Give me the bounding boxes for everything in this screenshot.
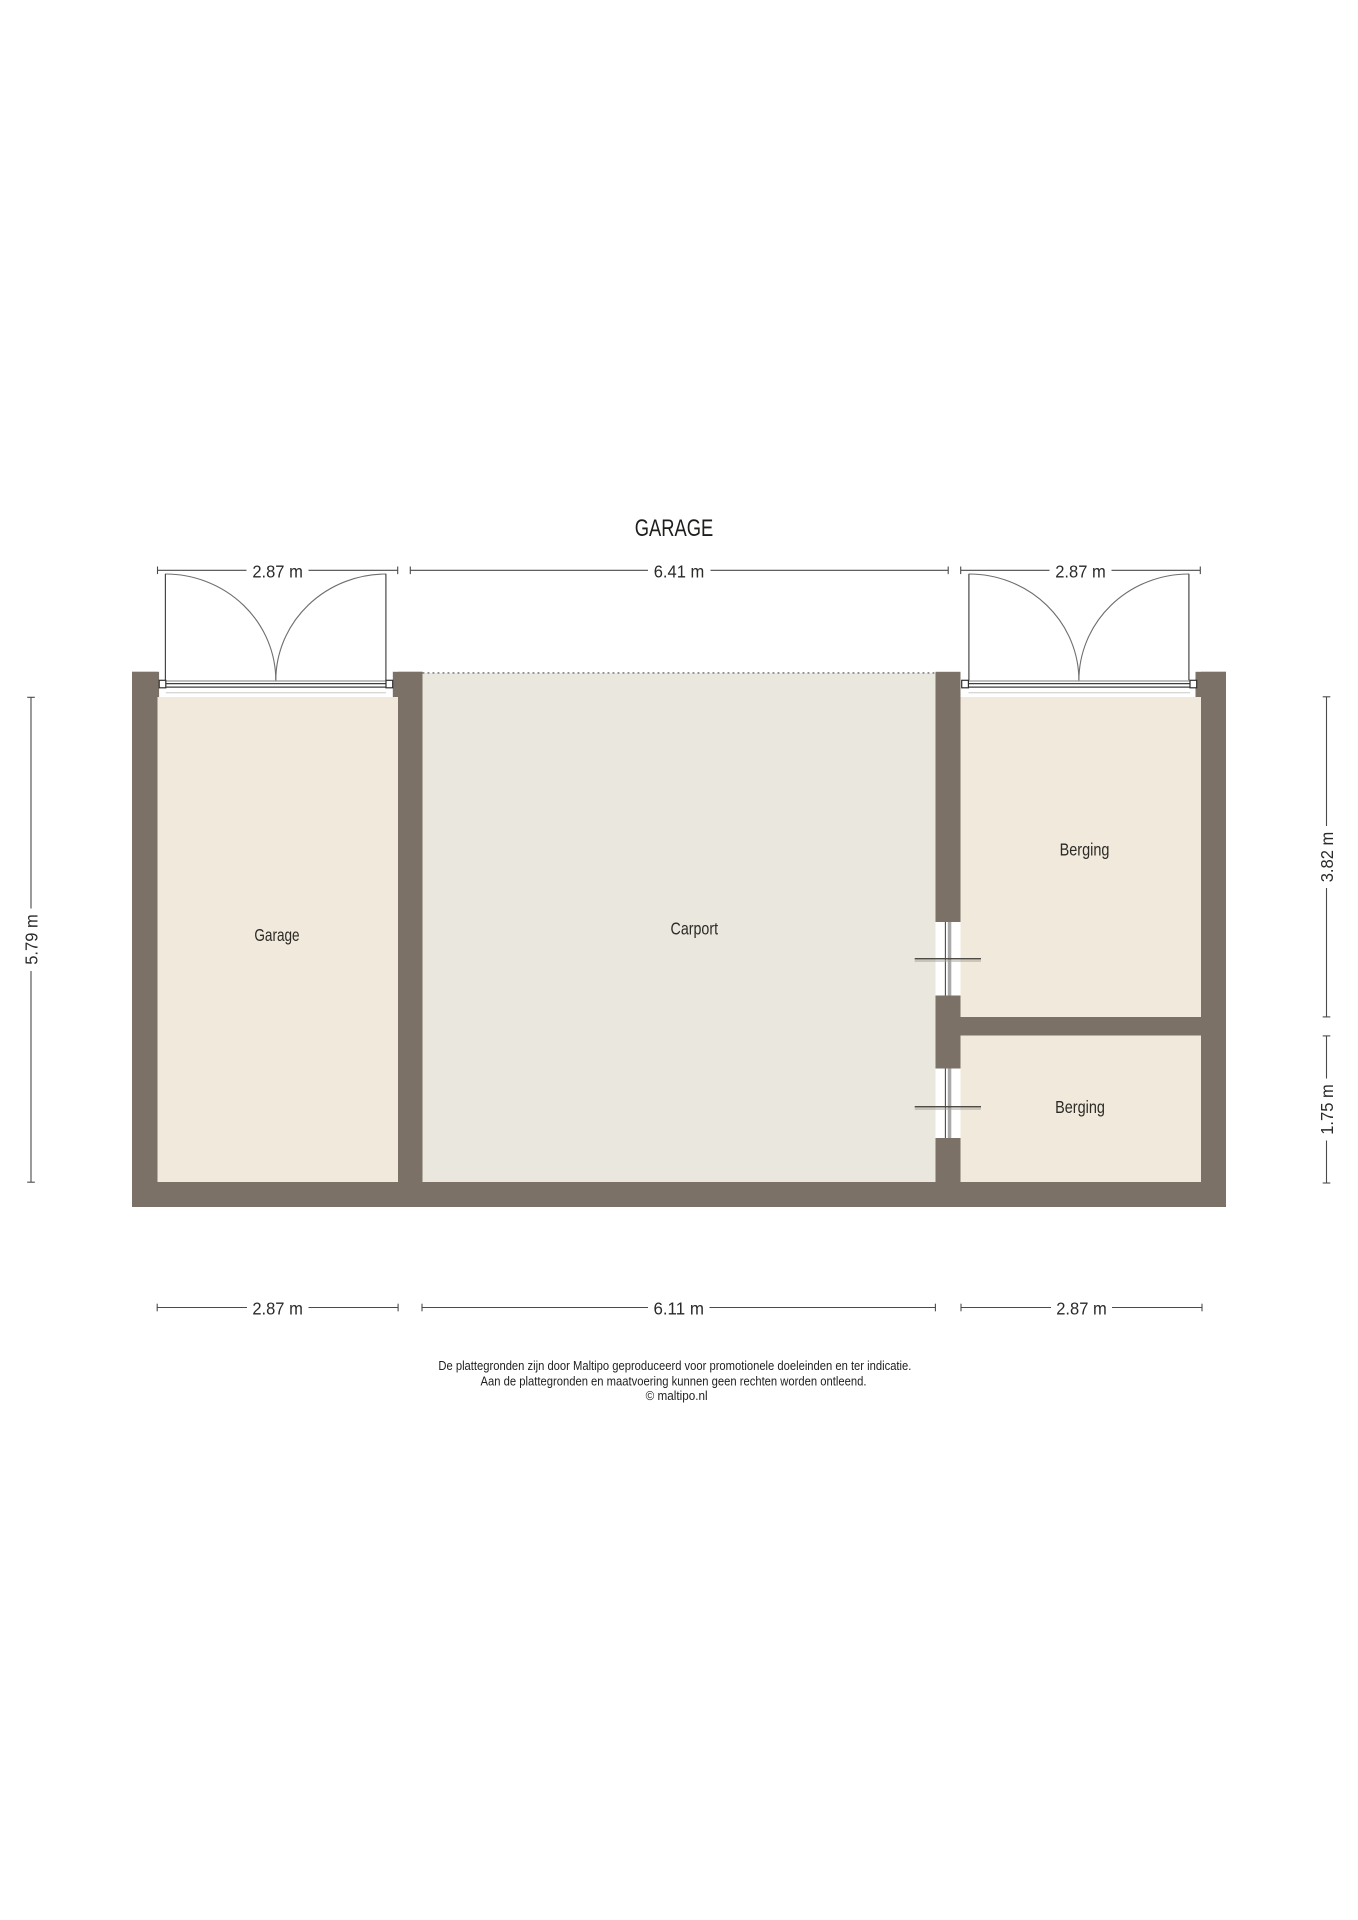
- svg-text:De plattegronden zijn door Mal: De plattegronden zijn door Maltipo gepro…: [438, 1358, 911, 1373]
- svg-text:© maltipo.nl: © maltipo.nl: [646, 1388, 708, 1403]
- svg-text:6.41 m: 6.41 m: [654, 562, 705, 582]
- svg-text:1.75 m: 1.75 m: [1317, 1084, 1337, 1135]
- svg-text:3.82 m: 3.82 m: [1317, 832, 1337, 883]
- svg-text:5.79 m: 5.79 m: [21, 914, 41, 965]
- svg-text:2.87 m: 2.87 m: [252, 1299, 303, 1319]
- svg-text:GARAGE: GARAGE: [635, 515, 714, 542]
- svg-text:Garage: Garage: [254, 925, 299, 945]
- svg-text:Berging: Berging: [1055, 1097, 1105, 1117]
- svg-text:2.87 m: 2.87 m: [1056, 1299, 1107, 1319]
- svg-text:Carport: Carport: [671, 919, 719, 939]
- svg-text:Aan de plattegronden en maatvo: Aan de plattegronden en maatvoering kunn…: [481, 1373, 867, 1388]
- svg-text:Berging: Berging: [1060, 840, 1110, 860]
- svg-text:2.87 m: 2.87 m: [1055, 562, 1106, 582]
- svg-text:2.87 m: 2.87 m: [252, 562, 303, 582]
- svg-text:6.11 m: 6.11 m: [653, 1299, 704, 1319]
